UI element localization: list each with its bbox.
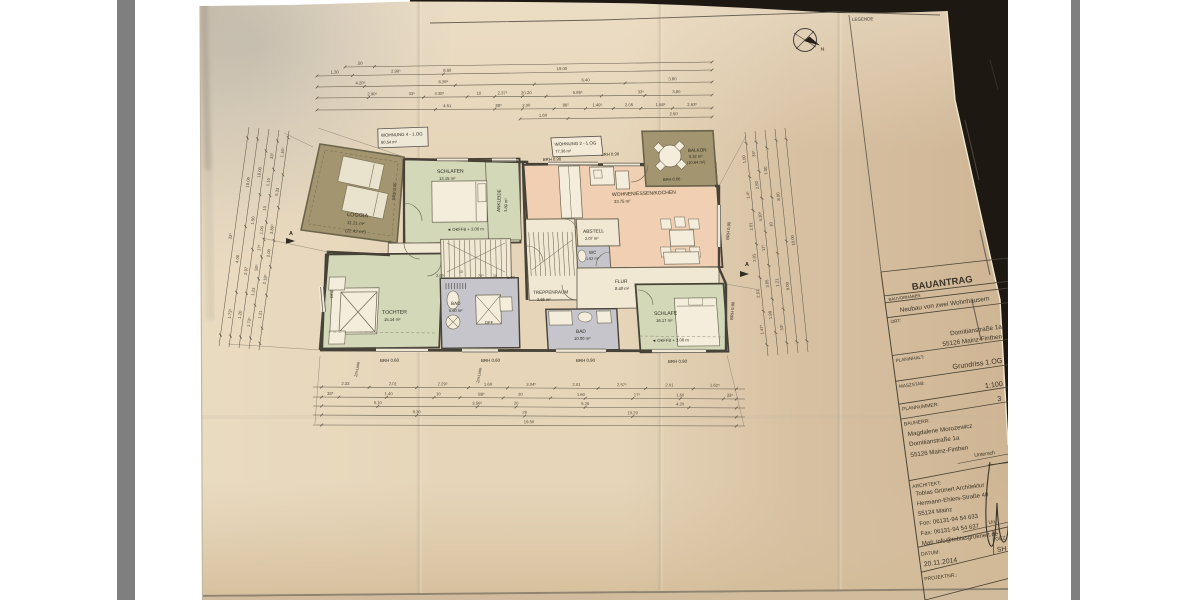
svg-text:88⁵: 88⁵ — [495, 103, 502, 108]
svg-text:15.14 m²: 15.14 m² — [384, 317, 401, 322]
svg-text:ANKLEIDE: ANKLEIDE — [496, 189, 502, 212]
svg-text:2.01: 2.01 — [755, 289, 761, 298]
svg-text:1.60: 1.60 — [577, 392, 586, 397]
svg-text:SCHLAFEN: SCHLAFEN — [437, 169, 464, 175]
svg-text:2.89: 2.89 — [436, 273, 445, 278]
svg-text:33⁵: 33⁵ — [638, 89, 645, 94]
svg-text:20: 20 — [522, 410, 527, 415]
svg-text:1.47⁵: 1.47⁵ — [759, 324, 765, 335]
svg-text:1.30: 1.30 — [331, 69, 340, 74]
svg-text:10: 10 — [477, 91, 482, 96]
svg-text:FLUR: FLUR — [615, 279, 628, 285]
svg-text:4.51: 4.51 — [443, 103, 452, 108]
svg-text:3.56⁵: 3.56⁵ — [472, 401, 482, 406]
svg-text:86⁵: 86⁵ — [563, 102, 570, 107]
svg-text:4.30⁵: 4.30⁵ — [757, 211, 763, 222]
svg-text:BRH 0.90: BRH 0.90 — [601, 151, 620, 157]
svg-text:2.63⁵: 2.63⁵ — [687, 102, 697, 107]
svg-text:3.80: 3.80 — [668, 76, 677, 81]
svg-text:17⁵: 17⁵ — [634, 392, 641, 397]
svg-text:Un: Un — [988, 519, 995, 526]
svg-text:BALKON: BALKON — [688, 147, 707, 153]
svg-text:4.20: 4.20 — [676, 401, 685, 406]
svg-text:2.57⁵: 2.57⁵ — [617, 382, 627, 387]
svg-text:2.33: 2.33 — [341, 381, 350, 386]
svg-text:16.17 m²: 16.17 m² — [656, 318, 673, 323]
svg-text:1.21: 1.21 — [774, 278, 780, 287]
svg-text:33⁵: 33⁵ — [227, 232, 233, 239]
svg-text:8.40 m²: 8.40 m² — [615, 286, 630, 291]
svg-text:TOCHTER: TOCHTER — [382, 310, 407, 316]
svg-text:20: 20 — [518, 392, 523, 397]
svg-text:DFE: DFE — [329, 290, 334, 299]
svg-text:2.50: 2.50 — [669, 111, 678, 116]
svg-text:88⁵: 88⁵ — [478, 392, 485, 397]
svg-text:9.00: 9.00 — [784, 281, 790, 290]
svg-text:BRH 0.90: BRH 0.90 — [668, 359, 688, 364]
svg-text:10: 10 — [493, 274, 497, 278]
svg-text:BRH 0.90: BRH 0.90 — [543, 156, 562, 162]
svg-text:5.60 m²: 5.60 m² — [449, 308, 463, 313]
svg-text:1.60: 1.60 — [539, 113, 548, 118]
svg-text:6.39⁵: 6.39⁵ — [438, 79, 448, 84]
svg-text:4.20⁵: 4.20⁵ — [355, 80, 365, 85]
svg-text:1.52 m²: 1.52 m² — [586, 257, 600, 261]
svg-text:17⁵: 17⁵ — [256, 244, 262, 251]
svg-text:1.00: 1.00 — [507, 275, 516, 280]
svg-text:93⁵: 93⁵ — [254, 264, 260, 271]
svg-text:SH: SH — [997, 546, 1007, 554]
svg-text:2.66 m²: 2.66 m² — [537, 297, 551, 302]
svg-text:(10.64 m²): (10.64 m²) — [687, 159, 706, 165]
svg-text:2.80: 2.80 — [754, 180, 760, 189]
svg-text:ABSTELL: ABSTELL — [583, 228, 605, 235]
svg-text:20: 20 — [514, 401, 519, 406]
svg-text:BRH 0.90: BRH 0.90 — [576, 358, 596, 363]
svg-text:A: A — [289, 231, 293, 237]
svg-text:2.90⁵: 2.90⁵ — [391, 69, 401, 74]
svg-text:5.32 m²: 5.32 m² — [689, 154, 703, 159]
svg-text:60.54 m²: 60.54 m² — [381, 139, 398, 145]
svg-text:WC: WC — [589, 250, 596, 255]
svg-text:10.20: 10.20 — [627, 410, 638, 415]
svg-text:33⁵: 33⁵ — [779, 324, 785, 331]
svg-text:5.86⁵: 5.86⁵ — [573, 90, 583, 95]
svg-text:33⁵: 33⁵ — [751, 150, 757, 157]
svg-text:2.01: 2.01 — [665, 382, 674, 387]
svg-text:◄ OKFFB + 3.00 m: ◄ OKFFB + 3.00 m — [652, 337, 689, 343]
svg-text:13.15 m²: 13.15 m² — [439, 176, 456, 181]
svg-text:1.60: 1.60 — [676, 392, 685, 397]
svg-text:19.50: 19.50 — [524, 419, 535, 424]
svg-text:77.36 m²: 77.36 m² — [555, 148, 572, 154]
svg-text:.50: .50 — [357, 61, 364, 66]
svg-text:1.40: 1.40 — [385, 391, 394, 396]
svg-text:2.00: 2.00 — [522, 103, 531, 108]
svg-text:2.05: 2.05 — [625, 102, 634, 107]
svg-text:◄ OKFFB + 3.00 m: ◄ OKFFB + 3.00 m — [447, 226, 484, 232]
svg-text:33⁵: 33⁵ — [409, 91, 416, 96]
svg-text:8.60: 8.60 — [443, 68, 452, 73]
svg-text:BRH 0.60: BRH 0.60 — [481, 358, 501, 363]
svg-text:8.00: 8.00 — [775, 192, 781, 201]
svg-text:2.01: 2.01 — [751, 253, 757, 262]
svg-text:5.10: 5.10 — [374, 400, 383, 405]
svg-text:BRH 0.60: BRH 0.60 — [380, 358, 400, 363]
svg-text:33⁵: 33⁵ — [269, 152, 275, 159]
svg-text:17⁵: 17⁵ — [760, 244, 766, 251]
svg-text:1.4⁵: 1.4⁵ — [745, 191, 751, 199]
svg-text:19.00: 19.00 — [557, 66, 568, 71]
svg-text:3.04⁵: 3.04⁵ — [526, 382, 536, 387]
svg-text:3.89 m²: 3.89 m² — [503, 198, 508, 212]
svg-text:1.58⁵: 1.58⁵ — [656, 102, 666, 107]
svg-text:BAD: BAD — [576, 329, 587, 335]
svg-text:10.00 m²: 10.00 m² — [574, 336, 591, 341]
svg-text:SCHLAFE: SCHLAFE — [654, 311, 678, 317]
svg-text:1.89: 1.89 — [767, 310, 773, 319]
svg-text:33.75 m²: 33.75 m² — [614, 198, 631, 204]
svg-text:20.20: 20.20 — [521, 90, 532, 95]
svg-text:3.38⁵: 3.38⁵ — [434, 91, 444, 96]
svg-text:33⁵: 33⁵ — [727, 393, 734, 398]
svg-text:3.85: 3.85 — [764, 279, 770, 288]
svg-text:A: A — [745, 262, 749, 268]
svg-text:9.30: 9.30 — [413, 409, 422, 414]
svg-text:2.01: 2.01 — [572, 382, 581, 387]
svg-text:1.49⁵: 1.49⁵ — [592, 102, 602, 107]
svg-text:BRH 0.00: BRH 0.00 — [663, 176, 681, 182]
svg-text:5.29: 5.29 — [581, 401, 590, 406]
svg-text:DFF: DFF — [485, 320, 494, 325]
svg-text:1.00: 1.00 — [741, 154, 747, 163]
svg-text:76⁵: 76⁵ — [478, 274, 484, 278]
svg-text:10: 10 — [436, 391, 441, 396]
svg-text:1.62⁵: 1.62⁵ — [710, 383, 720, 388]
svg-text:2.01: 2.01 — [748, 221, 754, 230]
svg-text:2.90⁵: 2.90⁵ — [367, 91, 377, 96]
svg-text:BAD: BAD — [451, 301, 461, 306]
svg-text:10: 10 — [459, 270, 463, 274]
svg-text:1.60: 1.60 — [484, 382, 493, 387]
svg-text:6.40: 6.40 — [581, 77, 590, 82]
svg-text:2.29⁵: 2.29⁵ — [438, 381, 448, 386]
svg-text:2.01: 2.01 — [389, 381, 398, 386]
svg-text:1.00: 1.00 — [763, 166, 769, 175]
svg-text:2.07 m²: 2.07 m² — [585, 236, 599, 241]
svg-text:2.37⁵: 2.37⁵ — [498, 90, 508, 95]
svg-text:LEGENDE: LEGENDE — [852, 16, 874, 22]
svg-text:33⁵: 33⁵ — [327, 391, 334, 396]
svg-text:3.80: 3.80 — [672, 89, 681, 94]
